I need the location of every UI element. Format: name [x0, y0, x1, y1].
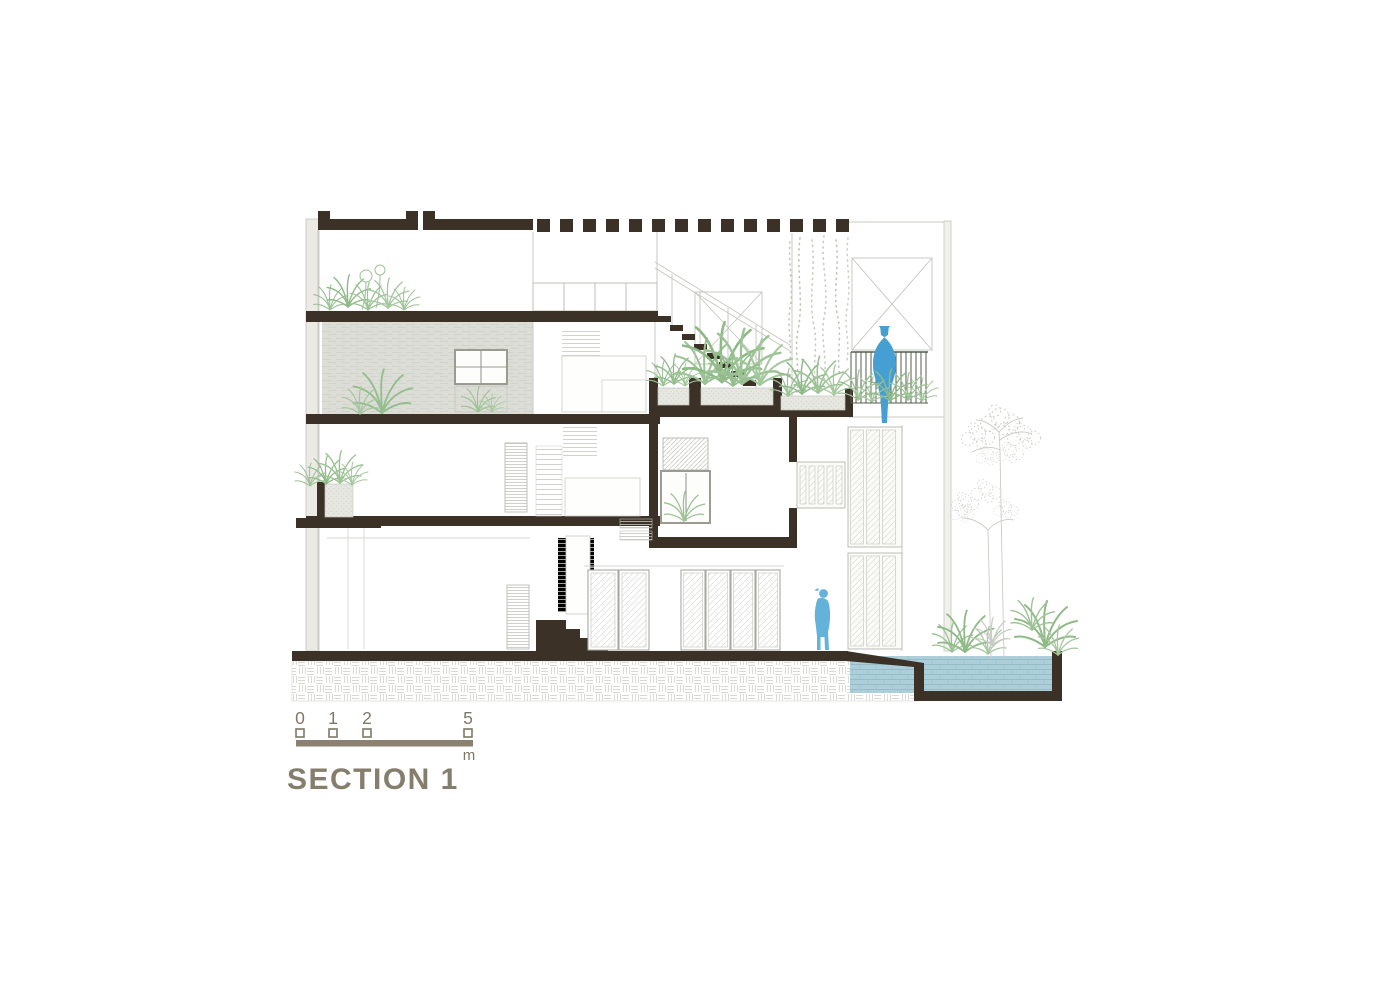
balcony-plants	[770, 356, 938, 402]
trees-sketch	[950, 405, 1041, 659]
louver-screen-upper	[848, 427, 902, 547]
louver-screen-lower	[848, 553, 902, 649]
scale-unit: m	[463, 747, 476, 764]
scale-tick-1: 1	[328, 708, 338, 728]
louver-doors	[505, 443, 529, 649]
louver-window	[797, 462, 845, 508]
section-drawing-canvas: 0 1 2 5 m SECTION 1	[0, 0, 1390, 983]
louver-screens	[797, 427, 902, 649]
architectural-section-sheet: 0 1 2 5 m SECTION 1	[0, 0, 1390, 983]
scale-bar-line	[296, 740, 473, 747]
scale-tick-0: 0	[295, 708, 305, 728]
bedroom-window	[661, 438, 710, 523]
roof-pergola-slats	[537, 219, 849, 232]
pool-side-shrubs	[933, 598, 1079, 655]
glass-balustrade	[533, 283, 657, 311]
glass-doors	[584, 566, 784, 650]
roof-parapets	[318, 211, 533, 230]
section-title: SECTION 1	[287, 763, 459, 796]
scale-tick-5: 5	[463, 708, 473, 728]
figure-ground	[814, 588, 830, 650]
scale-tick-2: 2	[362, 708, 372, 728]
scale-bar: 0 1 2 5 m	[295, 708, 475, 764]
x-window-right	[852, 258, 932, 350]
hanging-vines	[789, 236, 849, 392]
scale-tick-squares	[296, 729, 472, 737]
terrace-plants	[647, 322, 793, 386]
roof-garden-plants	[314, 265, 421, 310]
ground-hatch	[292, 661, 918, 701]
figure-balcony	[873, 326, 896, 423]
